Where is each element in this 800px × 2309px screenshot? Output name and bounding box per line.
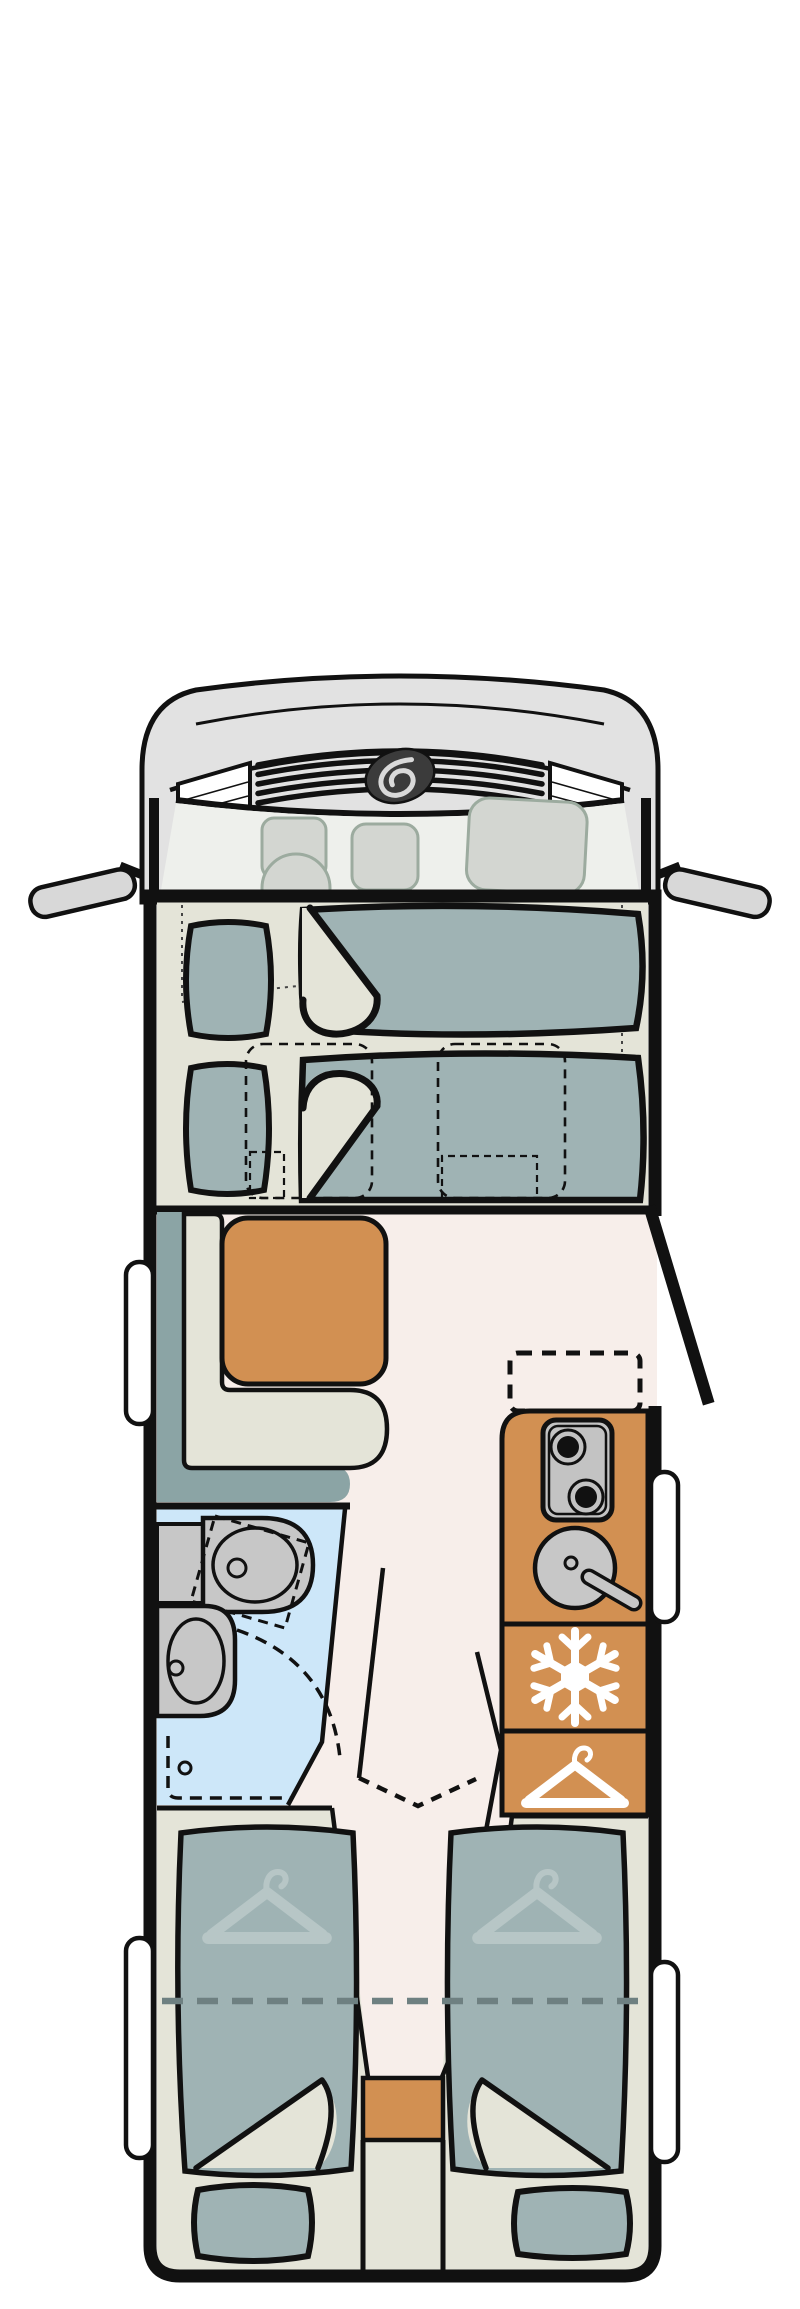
rear-pillow-right (514, 2188, 630, 2258)
window-right-rear (651, 1962, 678, 2162)
cab (142, 676, 658, 922)
window-right-front (651, 1472, 678, 1622)
left-mirror (28, 866, 150, 920)
hob (543, 1420, 612, 1520)
window-left-front (126, 1262, 153, 1424)
kitchen (502, 1353, 648, 1815)
right-mirror (650, 866, 772, 920)
bathroom-cabinet (157, 1524, 203, 1603)
floorplan-svg (0, 0, 800, 2309)
rear-pillow-left (194, 2185, 312, 2261)
sink-drain (565, 1557, 577, 1569)
fridge (502, 1624, 648, 1731)
floorplan-page (0, 0, 800, 2309)
step-between-beds (363, 2078, 443, 2140)
wardrobe (502, 1731, 648, 1815)
toilet (157, 1606, 235, 1716)
passenger-seat-ghost (465, 797, 588, 895)
dinette-table (222, 1218, 386, 1384)
washbasin (203, 1518, 313, 1612)
dinette (157, 1212, 387, 1502)
entrance-door (645, 1212, 707, 1406)
window-left-rear (126, 1938, 153, 2158)
pillow (186, 1064, 269, 1194)
middle-seat-ghost (352, 824, 418, 890)
pillow (186, 922, 271, 1038)
